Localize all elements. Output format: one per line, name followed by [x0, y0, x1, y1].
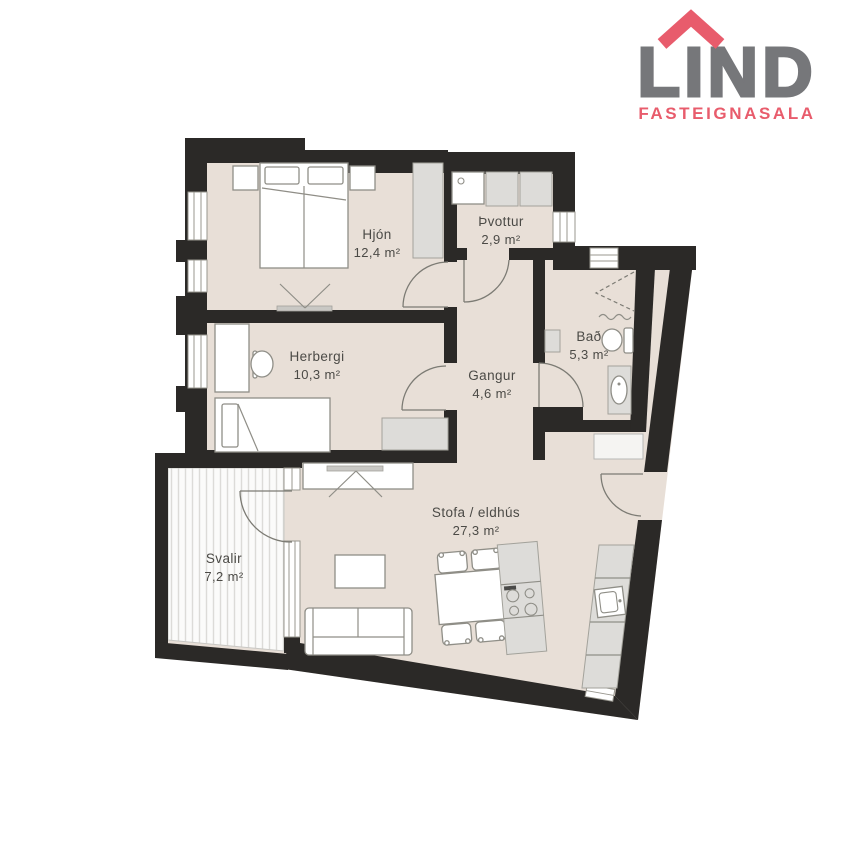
room-label-svalir: Svalir — [206, 551, 242, 566]
bathroom-sink — [608, 366, 631, 414]
room-label-herbergi: Herbergi — [290, 349, 345, 364]
window-hjon-1 — [188, 192, 207, 240]
room-area-stofa: 27,3 m² — [453, 523, 500, 538]
wardrobe-hjon — [413, 163, 443, 258]
room-label-hjon: Hjón — [362, 227, 391, 242]
room-label-stofa: Stofa / eldhús — [432, 505, 520, 520]
room-label-gangur: Gangur — [468, 368, 516, 383]
sofa — [305, 608, 412, 655]
floorplan-page: Hjón 12,4 m² Þvottur 2,9 m² Bað 5,3 m² H… — [0, 0, 867, 867]
dresser-herbergi — [382, 418, 448, 450]
coffee-table — [335, 555, 385, 588]
room-area-hjon: 12,4 m² — [354, 245, 401, 260]
room-area-svalir: 7,2 m² — [204, 569, 244, 584]
floorplan-canvas: Hjón 12,4 m² Þvottur 2,9 m² Bað 5,3 m² H… — [0, 0, 867, 867]
radiator-bad — [545, 330, 560, 352]
room-area-thvottur: 2,9 m² — [481, 232, 521, 247]
room-label-thvottur: Þvottur — [478, 214, 524, 229]
nightstand-left — [233, 166, 258, 190]
laundry-sink — [452, 172, 484, 204]
room-area-gangur: 4,6 m² — [472, 386, 512, 401]
logo-tagline-text: FASTEIGNASALA — [638, 104, 815, 123]
dining-table — [435, 569, 509, 625]
entry-mat — [594, 434, 643, 459]
window-stofa — [284, 541, 300, 637]
window-bad — [590, 248, 618, 268]
desk — [215, 324, 249, 392]
kitchen-sink — [594, 586, 625, 617]
room-label-bad: Bað — [576, 329, 601, 344]
single-bed — [215, 398, 330, 452]
window-thvottur — [553, 212, 575, 242]
window-balcony-sidelight — [284, 468, 300, 490]
desk-chair — [251, 351, 273, 378]
dryer — [520, 172, 552, 206]
double-bed — [260, 163, 348, 268]
window-herbergi — [188, 335, 207, 388]
window-hjon-2 — [188, 260, 207, 292]
room-area-herbergi: 10,3 m² — [294, 367, 341, 382]
room-thvottur-furniture — [452, 172, 552, 206]
logo: LIND FASTEIGNASALA — [637, 18, 816, 123]
nightstand-right — [350, 166, 375, 190]
room-area-bad: 5,3 m² — [569, 347, 609, 362]
washing-machine — [486, 172, 518, 206]
